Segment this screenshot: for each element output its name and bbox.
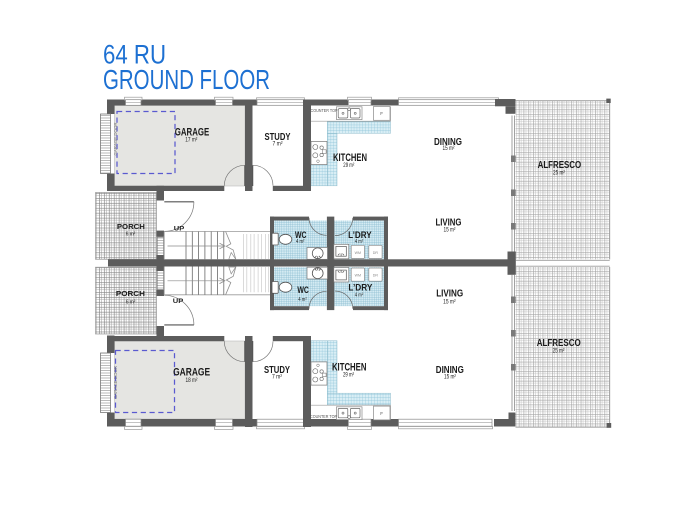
- svg-text:29 m²: 29 m²: [343, 163, 354, 169]
- svg-text:DR: DR: [373, 274, 379, 278]
- svg-text:UP: UP: [174, 225, 185, 232]
- svg-text:4 m²: 4 m²: [296, 239, 305, 245]
- svg-text:PORCH: PORCH: [116, 289, 145, 298]
- svg-text:4 m²: 4 m²: [355, 239, 364, 245]
- svg-text:25 m²: 25 m²: [553, 170, 565, 176]
- svg-text:7 m²: 7 m²: [273, 142, 283, 148]
- svg-text:DR: DR: [373, 251, 379, 255]
- svg-text:L’DRY: L’DRY: [348, 282, 372, 292]
- svg-text:GARAGE: GARAGE: [173, 366, 210, 378]
- svg-text:18 m²: 18 m²: [186, 378, 198, 384]
- svg-text:F: F: [380, 411, 383, 416]
- svg-text:15 m²: 15 m²: [444, 374, 456, 380]
- svg-text:4 m²: 4 m²: [298, 297, 307, 303]
- svg-text:6 m²: 6 m²: [126, 231, 136, 237]
- svg-text:LIVING: LIVING: [436, 288, 463, 299]
- svg-text:6 m²: 6 m²: [126, 300, 136, 306]
- svg-text:ALFRESCO: ALFRESCO: [537, 338, 581, 349]
- svg-text:4 m²: 4 m²: [355, 292, 364, 298]
- svg-text:15 m²: 15 m²: [444, 228, 456, 234]
- svg-text:PORCH: PORCH: [117, 222, 145, 231]
- svg-text:GARAGE DOOR: GARAGE DOOR: [113, 366, 118, 399]
- svg-text:WM: WM: [355, 274, 361, 278]
- svg-text:ALFRESCO: ALFRESCO: [538, 160, 582, 171]
- svg-text:KITCHEN: KITCHEN: [332, 361, 367, 373]
- svg-text:COUNTER TOP: COUNTER TOP: [311, 108, 338, 113]
- svg-text:25 m²: 25 m²: [553, 349, 565, 355]
- svg-text:GROUND FLOOR: GROUND FLOOR: [103, 64, 270, 95]
- svg-text:GARAGE DOOR: GARAGE DOOR: [113, 123, 118, 156]
- svg-text:COUNTER TOP: COUNTER TOP: [310, 414, 337, 419]
- svg-text:29 m²: 29 m²: [343, 373, 354, 379]
- svg-text:7 m²: 7 m²: [272, 374, 282, 380]
- svg-text:17 m²: 17 m²: [185, 138, 197, 144]
- svg-text:GARAGE: GARAGE: [175, 126, 210, 138]
- svg-text:15 m²: 15 m²: [443, 146, 455, 152]
- svg-text:F: F: [380, 111, 383, 116]
- svg-text:WC: WC: [297, 285, 309, 295]
- svg-text:WM: WM: [355, 251, 361, 255]
- svg-text:KITCHEN: KITCHEN: [333, 152, 367, 164]
- svg-text:15 m²: 15 m²: [443, 299, 456, 305]
- svg-text:UP: UP: [173, 298, 184, 305]
